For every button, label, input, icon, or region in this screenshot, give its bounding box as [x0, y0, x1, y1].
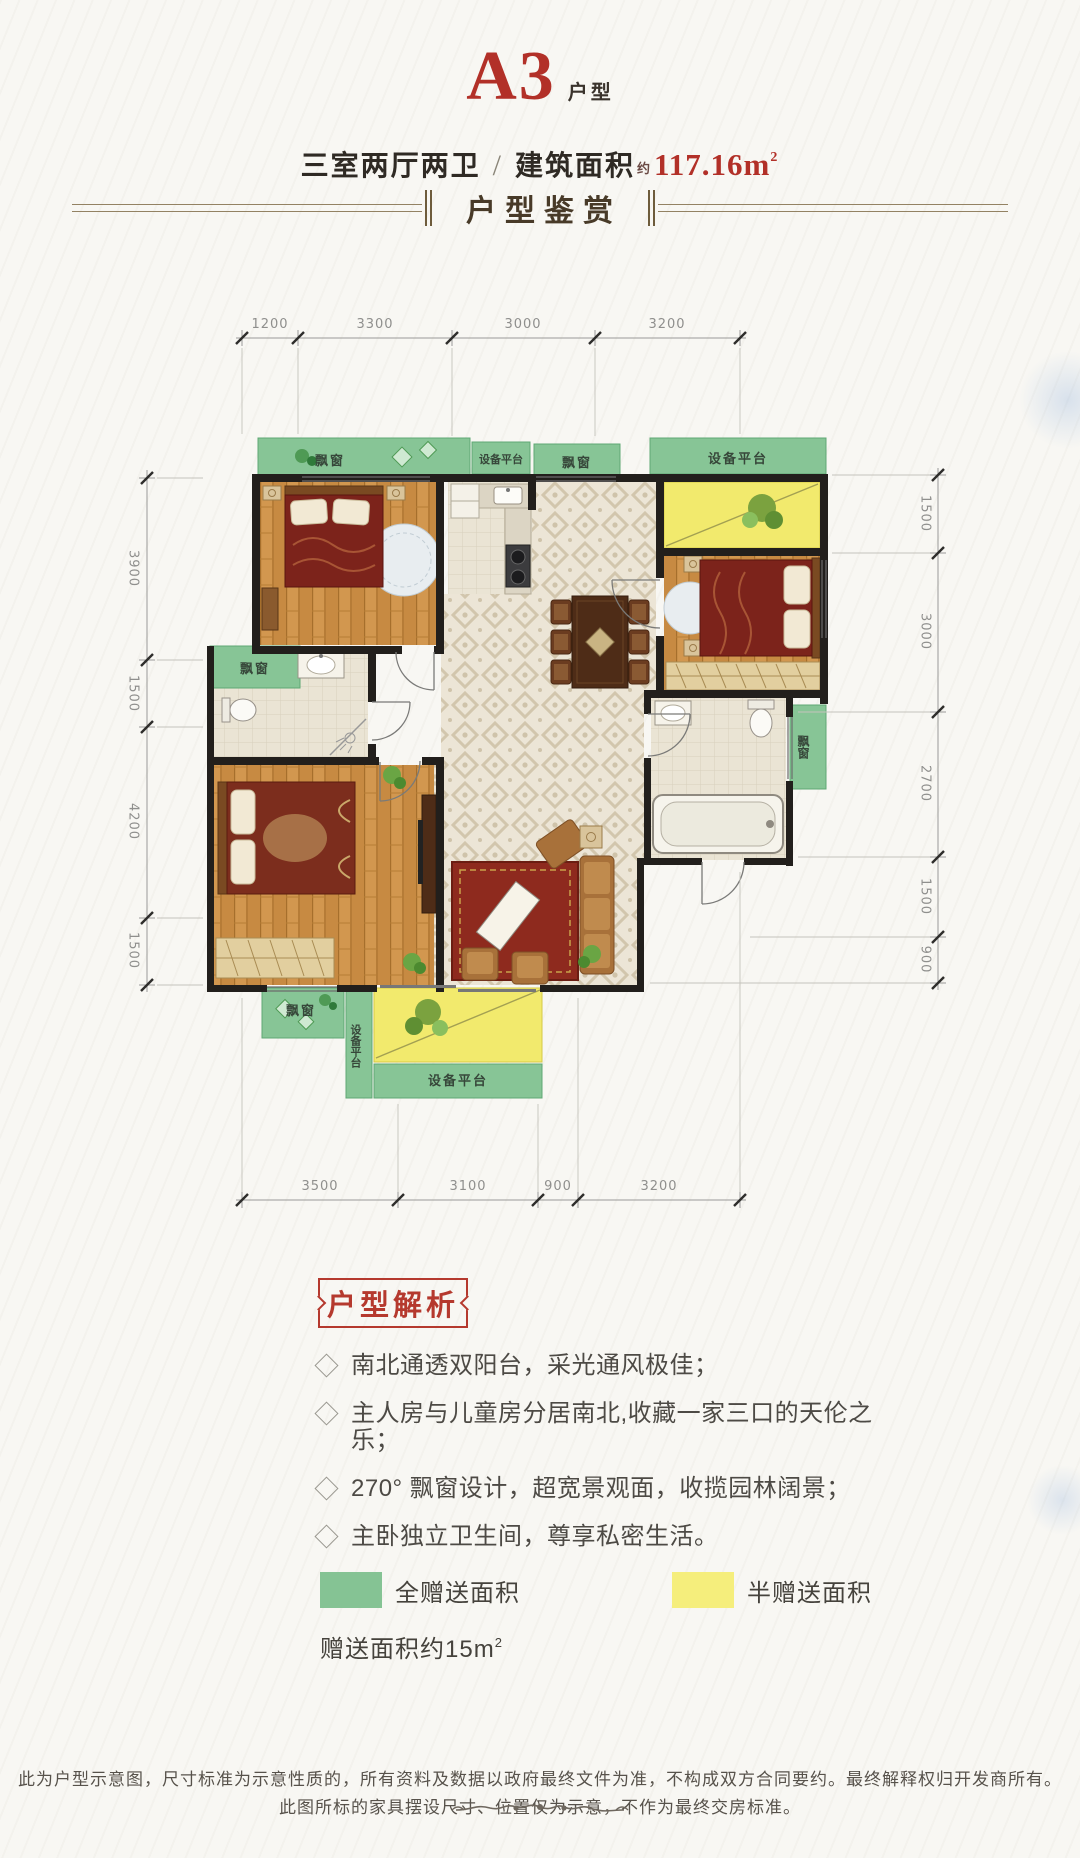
dim-top-1: 1200 — [240, 317, 300, 332]
dim-right-5: 900 — [918, 925, 933, 995]
divider-line-left — [72, 204, 422, 212]
dim-top-2: 3300 — [345, 317, 405, 332]
diamond-bullet-icon — [314, 1476, 338, 1500]
equipment-platform-label-bottom: 设备平台 — [398, 1070, 518, 1089]
spec-divider: / — [493, 149, 503, 182]
dim-top-4: 3200 — [637, 317, 697, 332]
dim-top-3: 3000 — [493, 317, 553, 332]
unit-name: A3 — [466, 38, 556, 115]
disclaimer-line-1: 此为户型示意图，尺寸标准为示意性质的，所有资料及数据以政府最终文件为准，不构成双… — [0, 1765, 1080, 1790]
feature-item: 南北通透双阳台，采光通风极佳； — [318, 1352, 878, 1379]
dim-bottom-2: 3100 — [438, 1179, 498, 1194]
feature-text: 南北通透双阳台，采光通风极佳； — [351, 1352, 719, 1379]
half-gift-swatch — [672, 1572, 734, 1608]
feature-item: 主卧独立卫生间，尊享私密生活。 — [318, 1523, 878, 1550]
gift-note-superscript: 2 — [495, 1635, 503, 1650]
dim-bottom-4: 3200 — [629, 1179, 689, 1194]
section-title-analysis: 户型解析 — [327, 1282, 459, 1324]
dim-right-3: 2700 — [918, 749, 933, 819]
diamond-bullet-icon — [314, 1524, 338, 1548]
room-spec: 三室两厅两卫 — [301, 151, 481, 182]
unit-suffix: 户型 — [568, 82, 614, 104]
analysis-title-box: 户型解析 — [318, 1278, 468, 1328]
diamond-bullet-icon — [314, 1401, 338, 1425]
area-label: 建筑面积 — [515, 151, 635, 182]
gift-area-note: 赠送面积约15m2 — [320, 1629, 503, 1664]
feature-item: 270° 飘窗设计，超宽景观面，收揽园林阔景； — [318, 1475, 878, 1502]
children-wardrobe — [666, 662, 820, 690]
bay-window-label-top-mid: 飘窗 — [547, 452, 607, 471]
poster-page: A3户型 三室两厅两卫/建筑面积约117.16m2 户型鉴赏 — [0, 0, 1080, 1858]
legend: 全赠送面积 半赠送面积 — [320, 1572, 872, 1608]
dim-left-4: 1500 — [126, 916, 141, 986]
feature-list: 南北通透双阳台，采光通风极佳； 主人房与儿童房分居南北,收藏一家三口的天伦之乐；… — [318, 1352, 878, 1571]
children-bed — [664, 556, 820, 658]
full-gift-label: 全赠送面积 — [395, 1573, 520, 1608]
equipment-platform-label-top-right: 设备平台 — [688, 448, 788, 467]
dim-bottom-1: 3500 — [290, 1179, 350, 1194]
section-divider: 户型鉴赏 — [72, 186, 1008, 230]
bay-window-strip-top-left — [258, 438, 470, 478]
bay-window-label-top-left: 飘窗 — [296, 450, 364, 469]
half-gift-label: 半赠送面积 — [747, 1573, 872, 1608]
divider-bar-right — [653, 190, 655, 226]
bay-window-label-bottom-left: 飘窗 — [268, 1000, 334, 1019]
bay-window-label-right: 飘窗 — [797, 714, 809, 780]
gift-note-text: 赠送面积约15m — [320, 1636, 495, 1663]
tv-console — [422, 795, 436, 913]
dim-left-3: 4200 — [126, 787, 141, 857]
dim-right-4: 1500 — [918, 862, 933, 932]
bay-window-label-left: 飘窗 — [221, 658, 289, 677]
spec-row: 三室两厅两卫/建筑面积约117.16m2 — [0, 144, 1080, 184]
chevron-right-icon — [460, 1295, 476, 1311]
dim-bottom-3: 900 — [528, 1179, 588, 1194]
dim-right-2: 3000 — [918, 597, 933, 667]
decorative-flourish — [450, 1799, 630, 1819]
feature-text: 主卧独立卫生间，尊享私密生活。 — [351, 1523, 719, 1550]
equipment-platform-label-bottom-vertical: 设备平台 — [349, 1000, 360, 1092]
section-title-appreciation: 户型鉴赏 — [466, 186, 622, 230]
header: A3户型 三室两厅两卫/建筑面积约117.16m2 — [0, 42, 1080, 184]
feature-text: 主人房与儿童房分居南北,收藏一家三口的天伦之乐； — [351, 1400, 878, 1454]
divider-bar-left — [425, 190, 427, 226]
feature-text: 270° 飘窗设计，超宽景观面，收揽园林阔景； — [351, 1475, 851, 1502]
second-bedroom-wardrobe — [216, 938, 334, 978]
tv-screen — [418, 820, 423, 884]
area-superscript: 2 — [770, 150, 779, 165]
area-approx: 约 — [637, 161, 652, 176]
chevron-left-icon — [311, 1295, 327, 1311]
divider-line-right — [658, 204, 1008, 212]
diamond-bullet-icon — [314, 1353, 338, 1377]
dining-set — [551, 596, 649, 688]
dim-left-1: 3900 — [126, 534, 141, 604]
dim-right-1: 1500 — [918, 479, 933, 549]
floor-plan-svg — [100, 290, 960, 1220]
dim-left-2: 1500 — [126, 659, 141, 729]
feature-item: 主人房与儿童房分居南北,收藏一家三口的天伦之乐； — [318, 1400, 878, 1454]
unit-title-row: A3户型 — [0, 42, 1080, 130]
full-gift-swatch — [320, 1572, 382, 1608]
second-bed — [218, 782, 355, 894]
equipment-platform-label-top-mid: 设备平台 — [472, 451, 530, 467]
area-value: 117.16m — [654, 147, 770, 182]
